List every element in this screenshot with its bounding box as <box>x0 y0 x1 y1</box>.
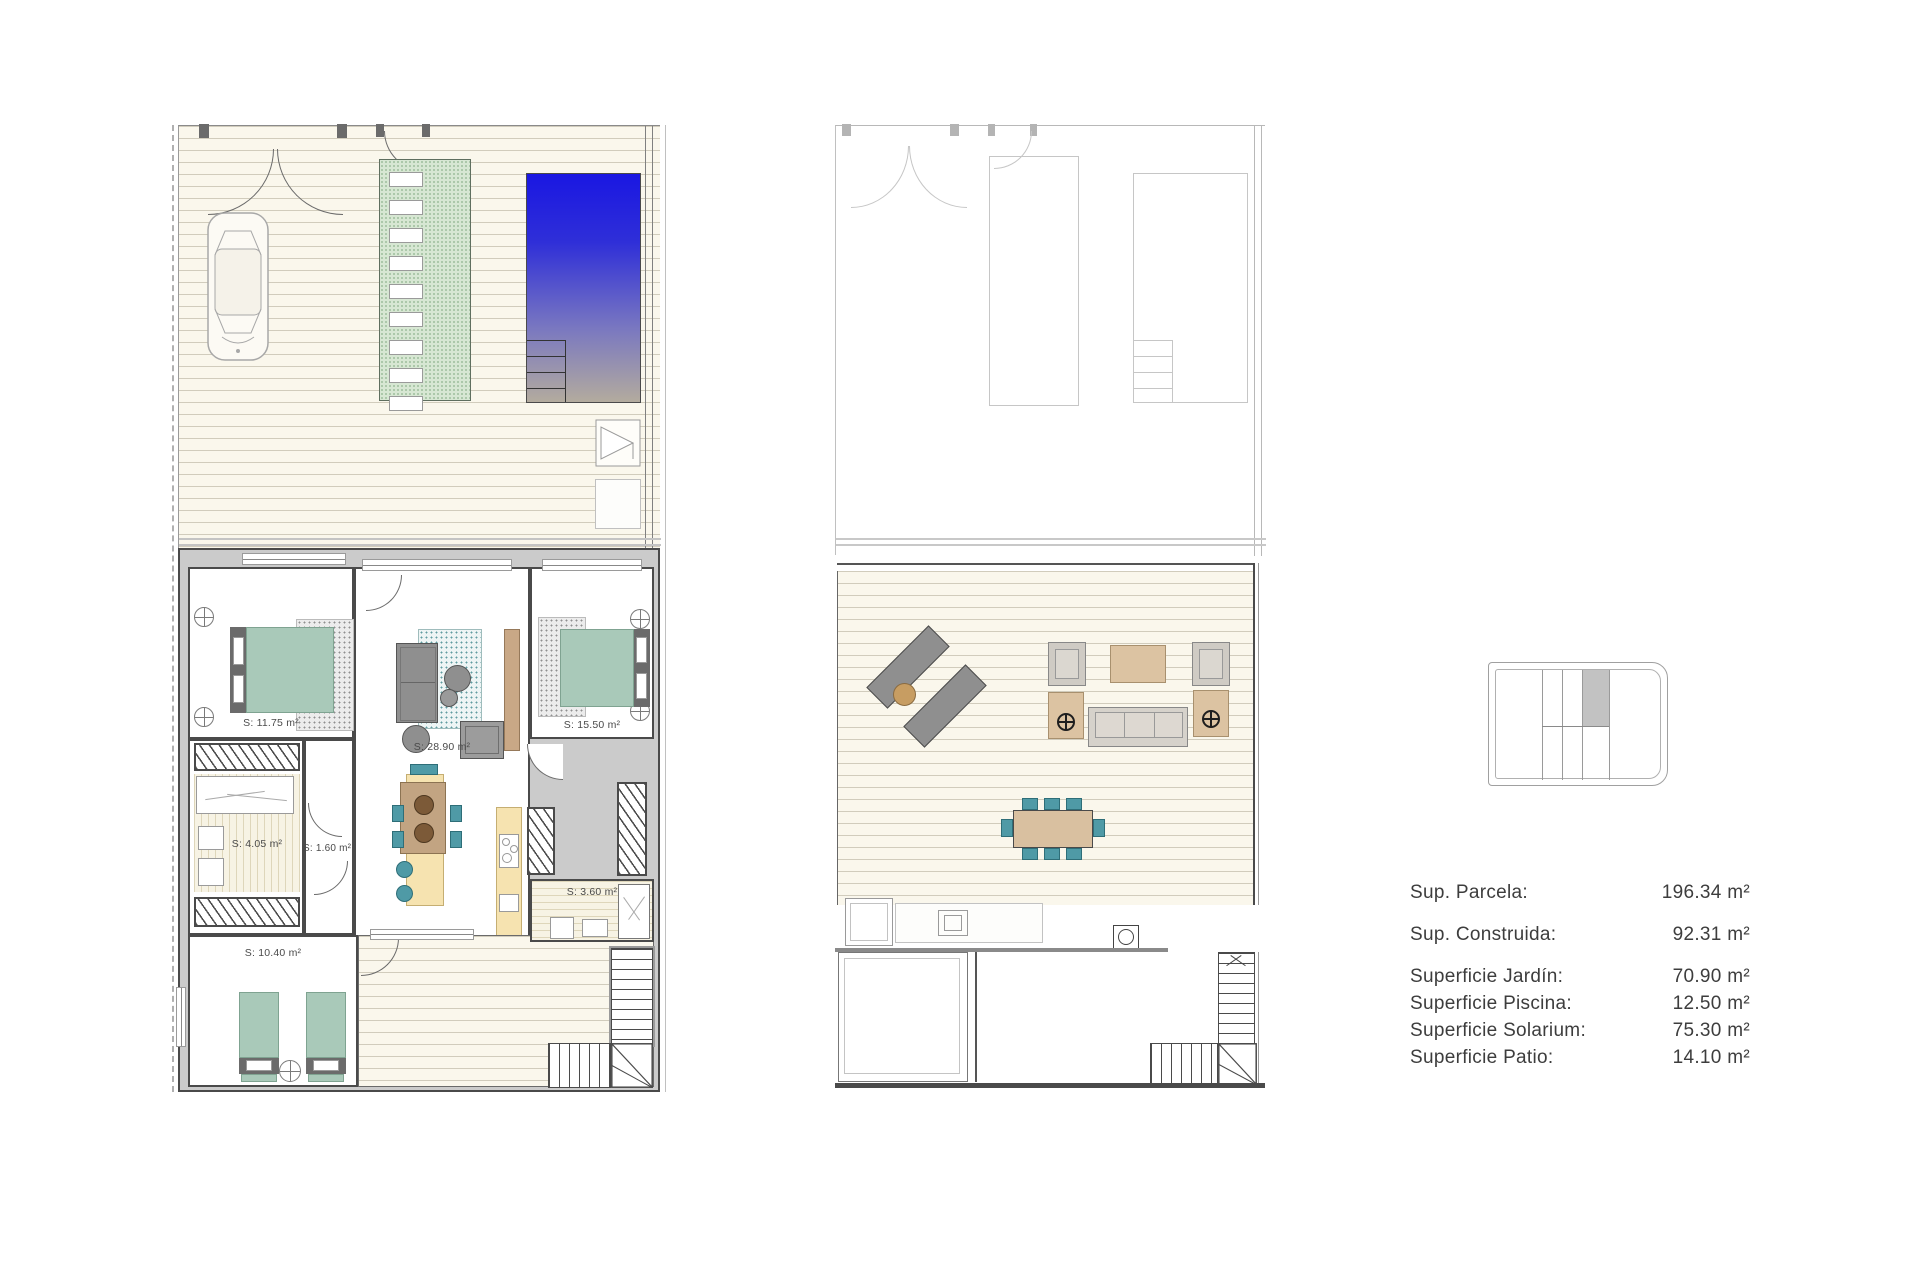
legend-value: 14.10 m² <box>1673 1047 1750 1069</box>
pool-step <box>527 388 565 389</box>
window <box>542 559 642 571</box>
unit-divider <box>1609 670 1610 780</box>
bedroom-2: S: 15.50 m² <box>530 567 654 739</box>
ghost-gate-arc <box>909 146 967 208</box>
legend-label: Sup. Construida: <box>1410 924 1556 946</box>
armchair-cushion <box>1055 649 1079 679</box>
patio-void-outline <box>838 952 968 1082</box>
room-area-label: S: 11.75 m² <box>190 717 352 729</box>
room-area-label: S: 10.40 m² <box>190 947 356 959</box>
stepping-path <box>379 159 471 401</box>
room-area-label: S: 15.50 m² <box>532 719 652 731</box>
wardrobe <box>194 743 300 771</box>
washbasin <box>582 919 608 937</box>
parcel-line <box>179 544 661 546</box>
wardrobe <box>617 782 647 876</box>
pool-step <box>527 340 565 341</box>
bed-cover <box>246 627 334 713</box>
window <box>242 553 346 565</box>
legend-label: Superficie Jardín: <box>1410 966 1563 988</box>
place-setting <box>414 795 434 815</box>
ghost-pool-step <box>1134 356 1172 357</box>
bed-foot <box>241 1074 277 1082</box>
ghost-wall-right <box>1254 126 1262 556</box>
parcel-line <box>836 538 1266 540</box>
door-arc <box>308 803 342 837</box>
single-bed <box>306 992 346 1082</box>
burner <box>510 845 518 853</box>
utility-column: S: 4.05 m² <box>188 739 304 935</box>
ghost-pool-step <box>1134 372 1172 373</box>
pillow <box>233 675 244 703</box>
bathroom-2: S: 3.60 m² <box>530 879 654 942</box>
outdoor-dining-table <box>1013 810 1093 848</box>
bar-stool <box>396 885 413 902</box>
cooktop <box>499 834 519 868</box>
legend-row: Superficie Patio: 14.10 m² <box>1410 1047 1750 1069</box>
driveway-gate-leaf-arc <box>277 149 343 215</box>
pool-step <box>527 356 565 357</box>
parcel-boundary-right <box>665 125 666 1092</box>
shower-drain-line <box>623 897 640 921</box>
path-step <box>389 340 423 355</box>
unit-highlight <box>1583 670 1609 726</box>
ghost-gate-post <box>950 124 959 136</box>
window <box>362 559 512 571</box>
legend-label: Superficie Piscina: <box>1410 993 1572 1015</box>
dining-chair <box>1022 798 1038 810</box>
double-bed <box>560 629 650 707</box>
parasol-base-icon <box>1202 710 1220 728</box>
bedroom-1: S: 11.75 m² <box>188 567 354 739</box>
path-step <box>389 284 423 299</box>
unit-divider <box>1562 670 1563 780</box>
armchair <box>1048 642 1086 686</box>
parcel-boundary-left <box>172 125 174 1092</box>
solarium <box>835 555 1265 905</box>
dining-chair <box>1066 848 1082 860</box>
dining-chair <box>1066 798 1082 810</box>
bed-cover <box>306 992 346 1058</box>
ghost-pool-step <box>1134 388 1172 389</box>
unit-divider <box>1542 670 1543 780</box>
hall: S: 1.60 m² <box>304 739 354 935</box>
pillow <box>636 673 647 699</box>
site-key-plan <box>1488 662 1668 786</box>
ghost-gate-arc <box>851 146 909 208</box>
solarium-wall-right <box>1253 563 1259 905</box>
dining-chair <box>450 831 462 848</box>
bed-cover <box>239 992 279 1058</box>
path-step <box>389 228 423 243</box>
ghost-pool-outline <box>1133 173 1248 403</box>
door-post <box>376 124 384 137</box>
door-arc <box>361 938 399 976</box>
island-dining-table <box>400 782 446 854</box>
dining-chair <box>1022 848 1038 860</box>
room-area-label: S: 28.90 m² <box>356 741 528 753</box>
gate-post <box>337 124 347 138</box>
architectural-plan-sheet: S: 11.75 m² S: 28.90 m² <box>0 0 1920 1280</box>
sideboard <box>504 629 520 751</box>
bedroom-3: S: 10.40 m² <box>188 935 358 1087</box>
legend-row: Sup. Construida: 92.31 m² <box>1410 924 1750 946</box>
sofa <box>1088 707 1188 747</box>
path-step <box>389 396 423 411</box>
bottom-wall <box>835 1083 1265 1088</box>
shower-tray <box>196 776 294 814</box>
counter-sink-basin <box>944 915 962 931</box>
lower-void-zone <box>835 952 1265 1085</box>
bathroom-1: S: 4.05 m² <box>194 774 300 892</box>
dining-chair <box>410 764 438 775</box>
armchair <box>1192 642 1230 686</box>
unit-mid-line <box>1542 726 1609 727</box>
path-step <box>389 368 423 383</box>
legend-value: 196.34 m² <box>1662 882 1750 904</box>
fridge-inner <box>850 903 888 941</box>
legend-label: Sup. Parcela: <box>1410 882 1528 904</box>
dining-chair <box>1093 819 1105 837</box>
legend-value: 12.50 m² <box>1673 993 1750 1015</box>
place-setting <box>414 823 434 843</box>
burner <box>502 853 512 863</box>
legend-row: Superficie Solarium: 75.30 m² <box>1410 1020 1750 1042</box>
bed-foot <box>308 1074 344 1082</box>
legend-value: 92.31 m² <box>1673 924 1750 946</box>
legend-value: 70.90 m² <box>1673 966 1750 988</box>
ghost-path-outline <box>989 156 1079 406</box>
path-step <box>389 312 423 327</box>
room-area-label: S: 4.05 m² <box>204 838 310 850</box>
dining-chair <box>1001 819 1013 837</box>
single-bed <box>239 992 279 1082</box>
lower-level-ghost <box>835 125 1265 555</box>
outdoor-fridge <box>845 898 893 946</box>
staircase-winder <box>611 1043 653 1088</box>
shower-tray <box>618 884 650 939</box>
swimming-pool <box>526 173 641 403</box>
legend-row: Superficie Piscina: 12.50 m² <box>1410 993 1750 1015</box>
wardrobe <box>194 897 300 927</box>
staircase-upper-run <box>611 948 653 1045</box>
pouf <box>440 689 458 707</box>
legend-row: Sup. Parcela: 196.34 m² <box>1410 882 1750 904</box>
pouf <box>444 665 471 692</box>
kitchen-sink <box>499 894 519 912</box>
staircase-lower-run <box>548 1043 611 1088</box>
dining-chair <box>1044 798 1060 810</box>
ghost-gate-post <box>842 124 851 136</box>
summer-kitchen <box>835 895 1265 953</box>
car <box>206 209 270 364</box>
dining-chair <box>450 805 462 822</box>
entry-door-arc <box>366 575 402 611</box>
sofa-cushions <box>1095 712 1183 738</box>
ceiling-light-icon <box>194 607 214 627</box>
parasol-base-icon <box>1057 713 1075 731</box>
legend-value: 75.30 m² <box>1673 1020 1750 1042</box>
pillow <box>233 637 244 665</box>
pillow <box>313 1060 339 1071</box>
driveway-gate-leaf-arc <box>208 149 274 215</box>
path-step <box>389 256 423 271</box>
armchair-cushion <box>1199 649 1223 679</box>
coffee-table <box>1110 645 1166 683</box>
pool-step <box>527 372 565 373</box>
door-arc <box>314 861 348 895</box>
outdoor-counter <box>895 903 1043 943</box>
parcel-line <box>179 538 661 540</box>
legend-label: Superficie Patio: <box>1410 1047 1553 1069</box>
pool-steps-edge <box>565 340 566 402</box>
tv-cabinet <box>460 721 504 759</box>
pillow <box>246 1060 272 1071</box>
outdoor-shower <box>595 419 641 467</box>
floor-light-circle <box>1118 929 1134 945</box>
ghost-pool-step <box>1134 340 1172 341</box>
lounger-side-table <box>893 683 916 706</box>
zone-wall <box>975 952 977 1082</box>
toilet <box>550 917 574 939</box>
legend-label: Superficie Solarium: <box>1410 1020 1586 1042</box>
staircase-lower-run <box>1150 1043 1218 1085</box>
ceiling-light-icon <box>279 1060 301 1082</box>
bar-stool <box>396 861 413 878</box>
first-floor-plan <box>835 125 1265 1092</box>
dining-chair <box>1044 848 1060 860</box>
garden-wall-right <box>645 126 653 549</box>
sliding-door <box>370 929 474 940</box>
patio-deck <box>358 935 654 1087</box>
double-bed <box>230 627 334 713</box>
staircase-upper-run <box>1218 952 1255 1047</box>
solarium-wall-top <box>837 563 1255 565</box>
floor-light-box <box>1113 925 1139 949</box>
shower-glass-line <box>227 794 287 801</box>
legend-row: Superficie Jardín: 70.90 m² <box>1410 966 1750 988</box>
house-outline: S: 11.75 m² S: 28.90 m² <box>178 548 660 1092</box>
ceiling-light-icon <box>630 609 650 629</box>
key-plan-inner-outline <box>1495 669 1661 779</box>
gate-post <box>199 124 209 138</box>
burner <box>502 838 510 846</box>
area-legend: Sup. Parcela: 196.34 m² Sup. Construida:… <box>1410 882 1750 1082</box>
bed-cover <box>560 629 634 707</box>
path-step <box>389 200 423 215</box>
staircase-winder <box>1218 1043 1257 1085</box>
ground-floor-plan: S: 11.75 m² S: 28.90 m² <box>178 125 660 1092</box>
garden-area <box>178 125 660 548</box>
patio-void-inner <box>844 958 960 1074</box>
parcel-line <box>836 544 1266 546</box>
sofa-cushion <box>400 647 436 721</box>
window <box>176 987 186 1047</box>
door-arc <box>527 744 563 780</box>
dining-chair <box>392 831 404 848</box>
sofa <box>396 643 438 723</box>
living-room: S: 28.90 m² <box>354 567 530 942</box>
pillow <box>636 637 647 663</box>
toilet <box>198 858 224 886</box>
kitchen-counter <box>496 807 522 941</box>
wardrobe <box>527 807 555 875</box>
counter-sink <box>938 910 968 936</box>
garden-storage <box>595 479 641 529</box>
path-step <box>389 172 423 187</box>
ghost-pool-steps-edge <box>1172 340 1173 402</box>
room-area-label: S: 1.60 m² <box>303 843 349 854</box>
dining-chair <box>392 805 404 822</box>
